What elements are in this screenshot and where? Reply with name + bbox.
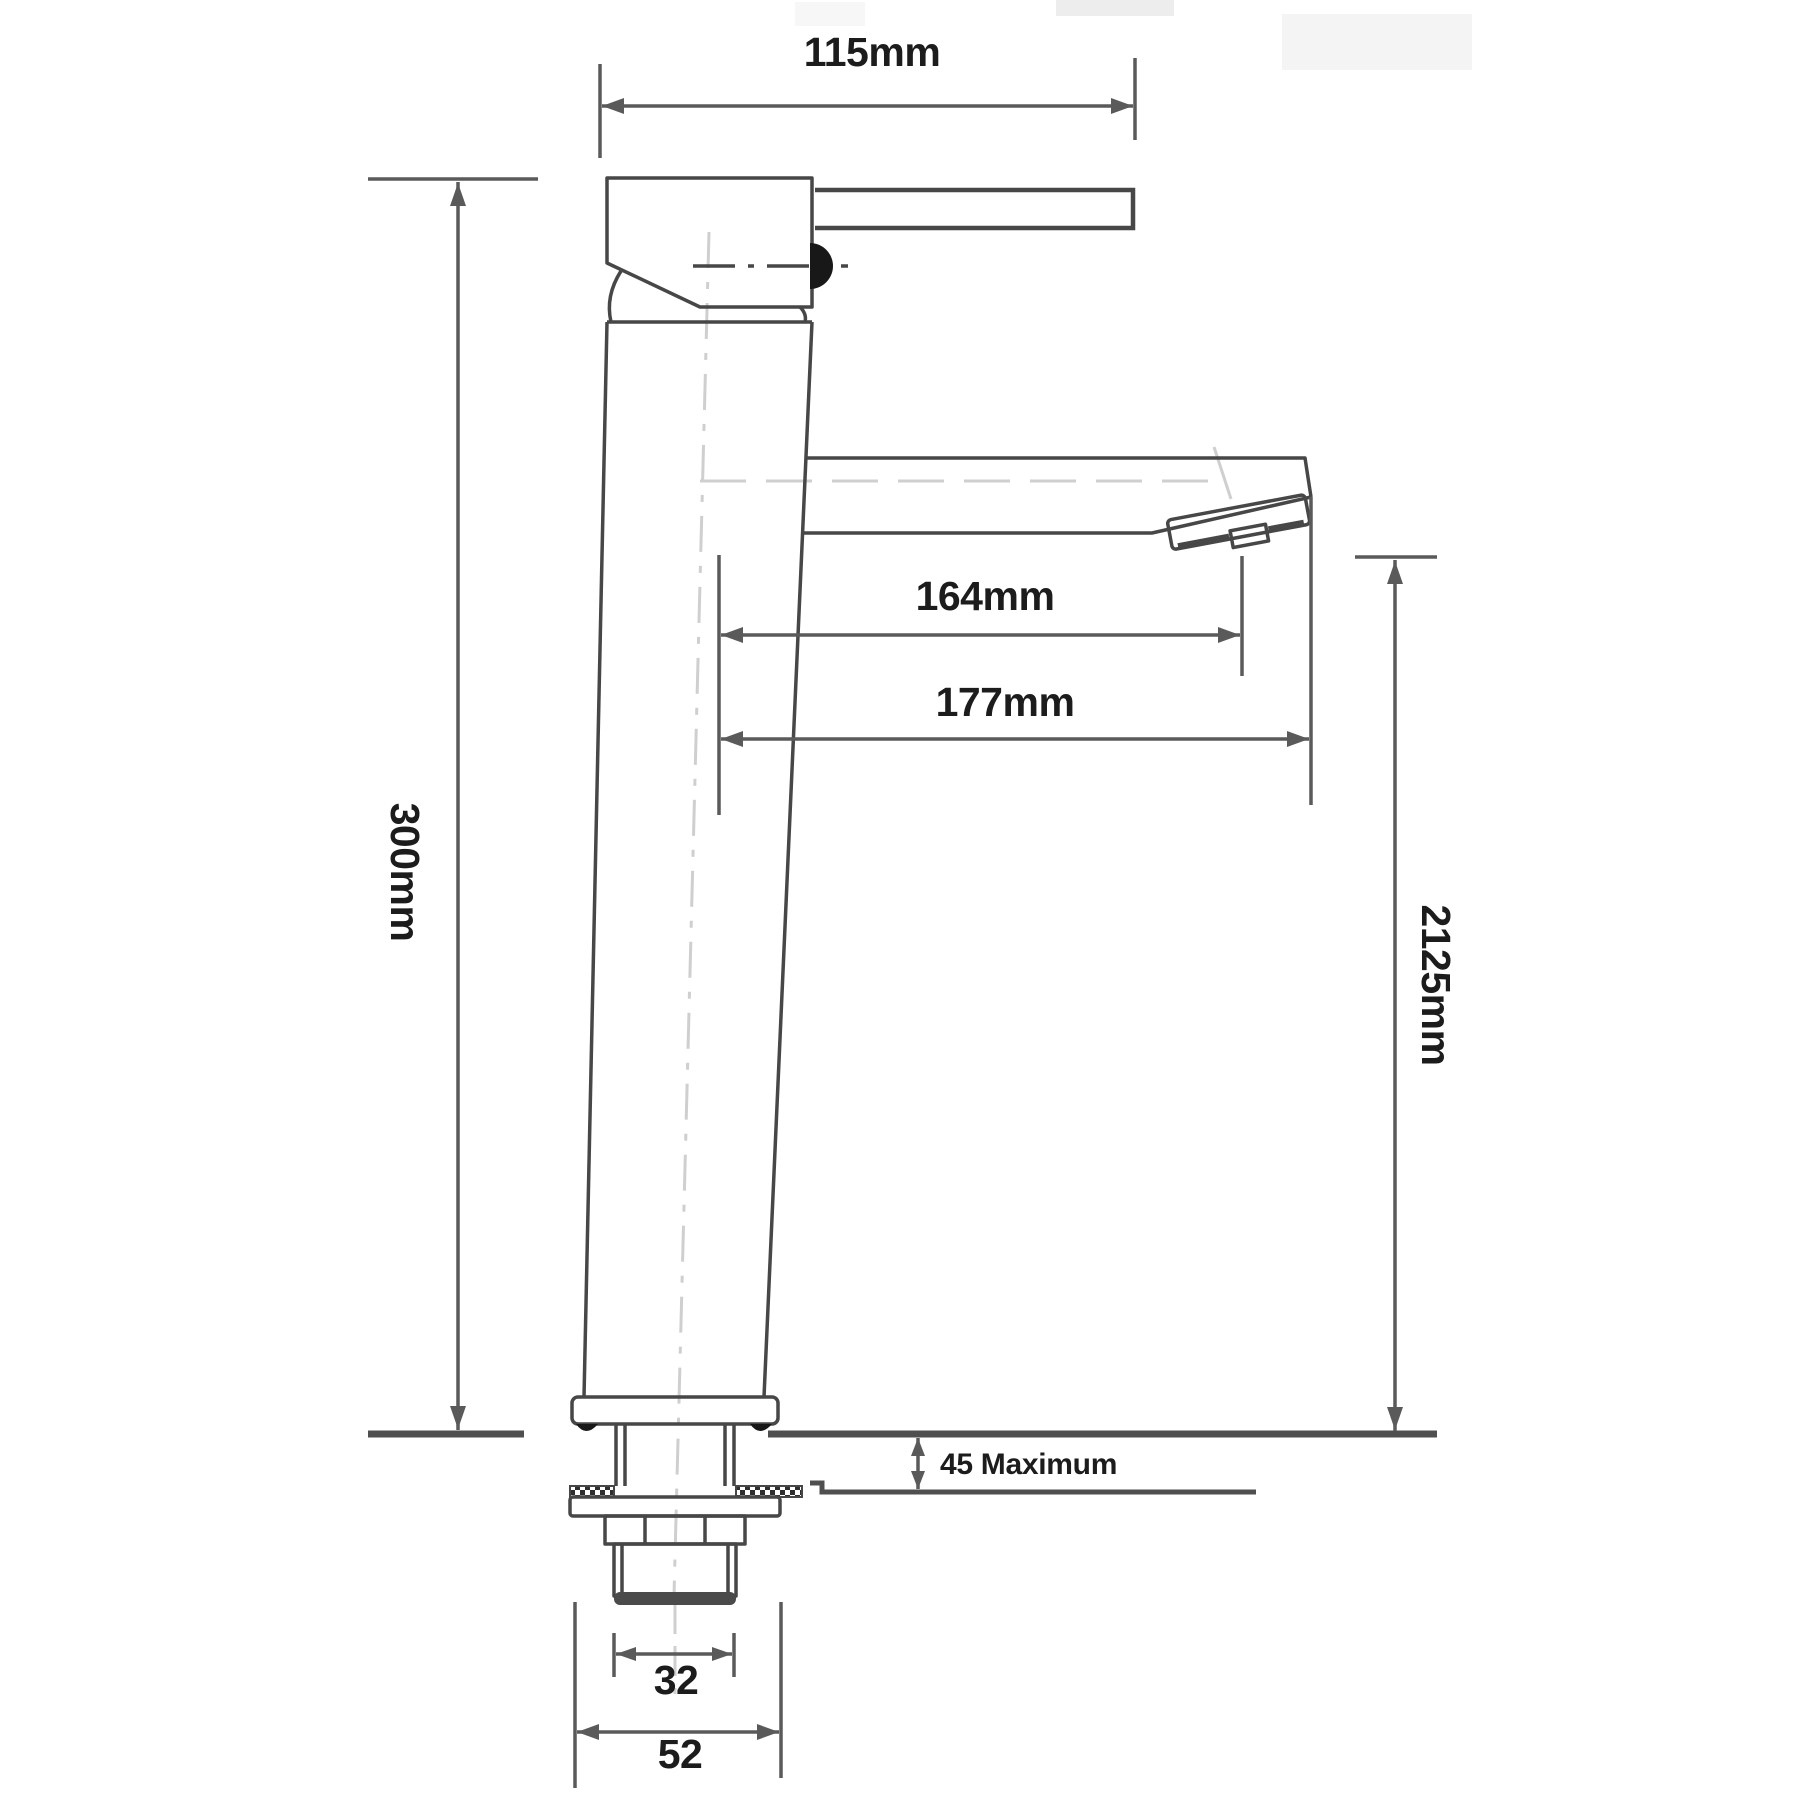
dim-label-115mm: 115mm [804, 29, 941, 75]
deck-underside-line [810, 1483, 1256, 1492]
technical-drawing-page: 115mm 300mm 164mm 177mm 2125mm [0, 0, 1800, 1800]
faucet-spout [803, 458, 1311, 533]
faucet-handle [815, 190, 1133, 228]
flange-foot-right [750, 1424, 772, 1431]
pivot-dot [810, 243, 833, 289]
threaded-tail [614, 1544, 736, 1605]
dim-115: 115mm [600, 29, 1135, 158]
dim-label-300mm: 300mm [382, 803, 428, 942]
tail-end-cap [614, 1592, 736, 1605]
flange-foot-left [576, 1424, 598, 1431]
dim-32: 32 [614, 1633, 734, 1703]
aerator [1167, 495, 1312, 559]
dim-45: 45 Maximum [911, 1438, 1117, 1489]
dim-label-52: 52 [658, 1731, 703, 1777]
dim-177: 177mm [721, 497, 1311, 805]
dim-label-45-maximum: 45 Maximum [940, 1448, 1117, 1481]
faucet-body [584, 322, 812, 1397]
dim-label-32: 32 [654, 1657, 699, 1703]
dim-label-177mm: 177mm [936, 679, 1075, 725]
shank [616, 1424, 734, 1486]
dim-2125: 2125mm [1355, 557, 1459, 1431]
dim-label-2125mm: 2125mm [1413, 904, 1459, 1065]
faucet-drawing: 115mm 300mm 164mm 177mm 2125mm [0, 0, 1800, 1800]
dim-label-164mm: 164mm [916, 573, 1055, 619]
mounting-flange [572, 1397, 778, 1431]
dim-300: 300mm [368, 179, 538, 1430]
faucet-head [607, 178, 848, 322]
countertop-line [368, 1434, 1437, 1492]
